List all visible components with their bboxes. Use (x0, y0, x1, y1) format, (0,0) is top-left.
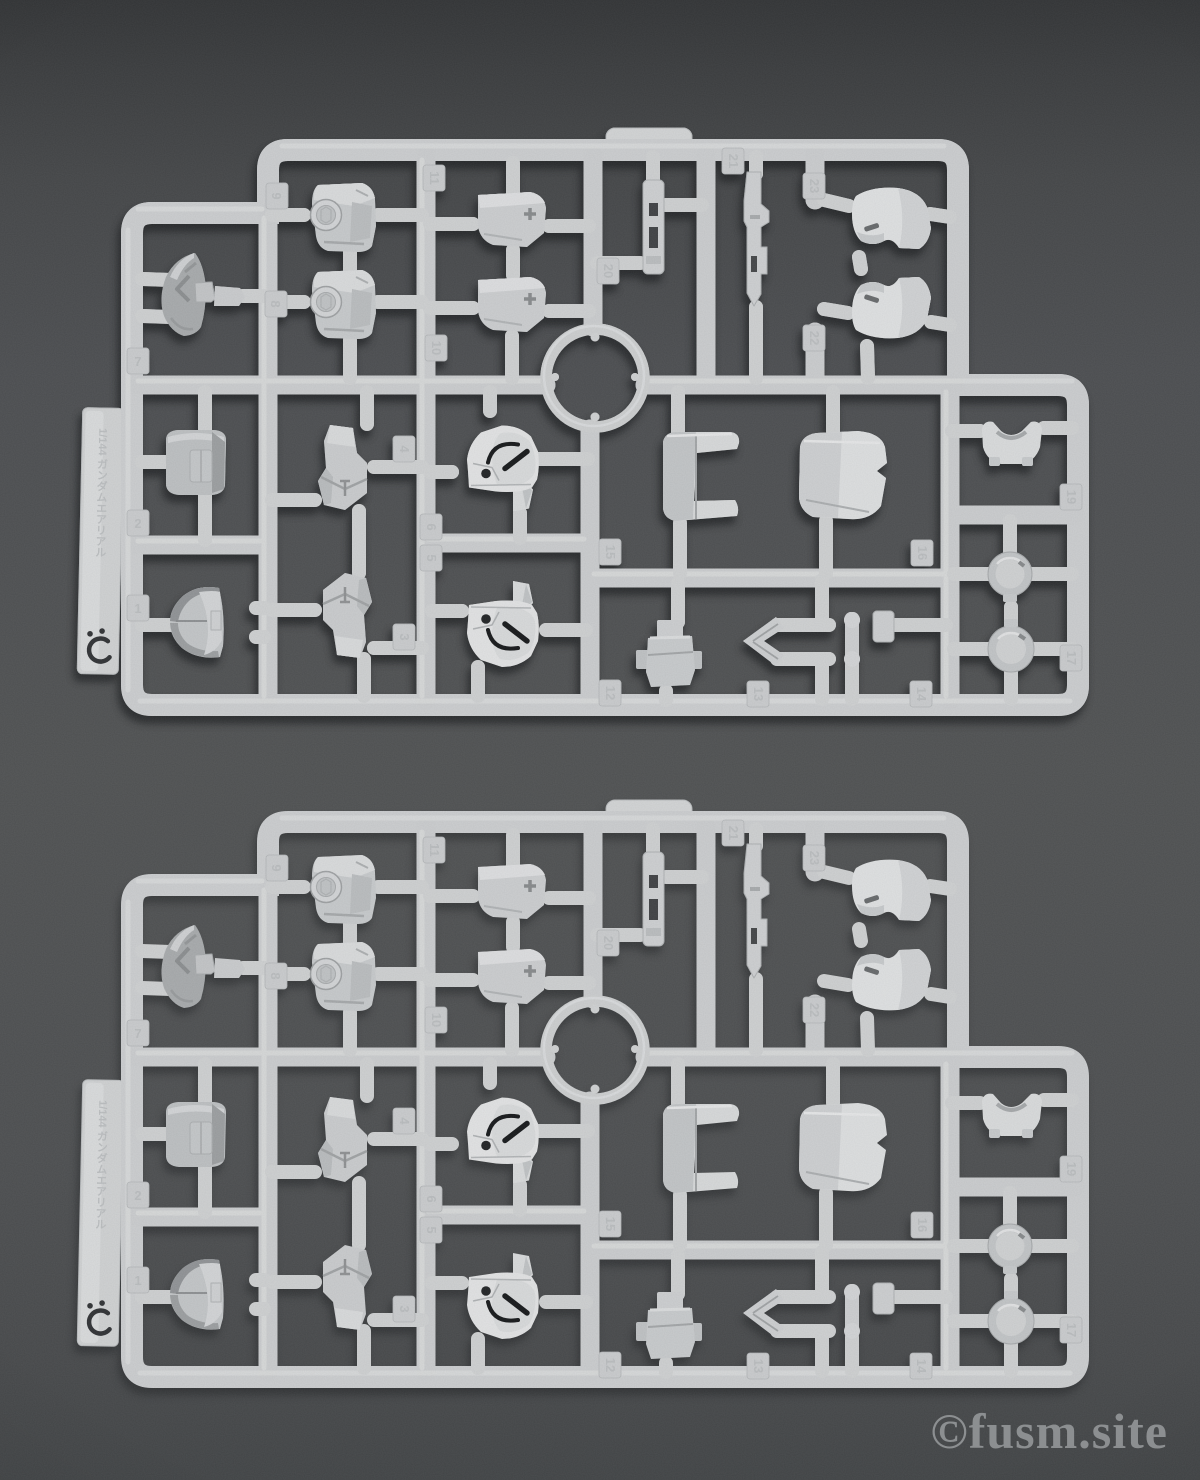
svg-text:©fusm.site: ©fusm.site (930, 1403, 1168, 1459)
